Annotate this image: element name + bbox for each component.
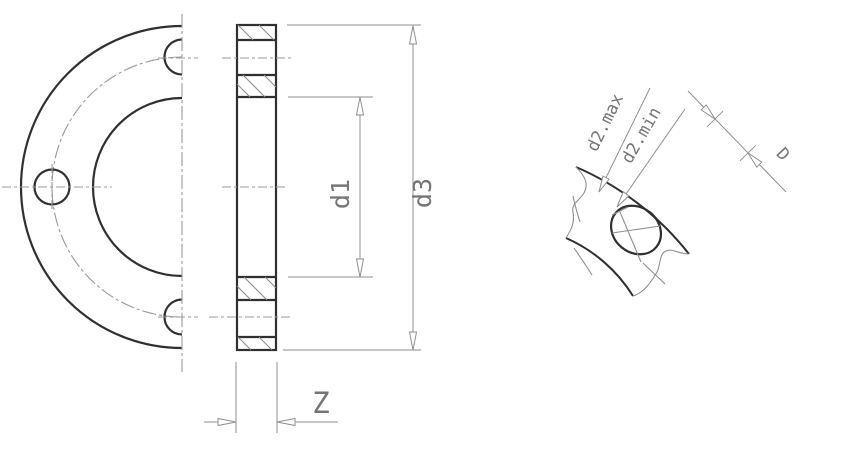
dimension-z: Z bbox=[204, 362, 338, 433]
d1-arrow-top bbox=[357, 97, 364, 115]
d2min-arrow bbox=[617, 192, 629, 207]
dimension-d2min: d2.min bbox=[612, 104, 685, 215]
d3-label: d3 bbox=[408, 178, 437, 208]
d1-arrow-bottom bbox=[357, 259, 364, 277]
detail-break-left bbox=[566, 167, 586, 238]
detail-break-right bbox=[633, 250, 689, 296]
z-arrow-right bbox=[277, 419, 295, 426]
d2max-label: d2.max bbox=[583, 91, 628, 155]
d2min-label: d2.min bbox=[618, 104, 666, 167]
slot-radial-centerline bbox=[620, 212, 641, 262]
d3-arrow-bottom bbox=[410, 332, 417, 350]
front-view bbox=[2, 14, 198, 372]
section-view bbox=[209, 25, 293, 350]
half-flange-drawing: d1 d3 Z d2.max bbox=[0, 0, 847, 454]
detail-break-stroke-3 bbox=[643, 263, 665, 284]
bolt-circle-arc bbox=[52, 57, 182, 317]
d3-arrow-top bbox=[410, 26, 417, 44]
detail-inner-arc bbox=[566, 238, 633, 296]
detail-break-stroke-2 bbox=[574, 248, 592, 275]
d-dim-line bbox=[688, 91, 786, 192]
detail-view bbox=[566, 167, 689, 296]
z-label: Z bbox=[312, 386, 329, 420]
dimension-d1: d1 bbox=[288, 97, 373, 277]
z-arrow-left bbox=[218, 419, 236, 426]
technical-drawing-page: d1 d3 Z d2.max bbox=[0, 0, 847, 454]
d1-label: d1 bbox=[326, 179, 355, 209]
d-label: D bbox=[772, 144, 794, 165]
slot-circumferential-centerline bbox=[612, 226, 660, 233]
dimension-d: D bbox=[688, 91, 793, 192]
